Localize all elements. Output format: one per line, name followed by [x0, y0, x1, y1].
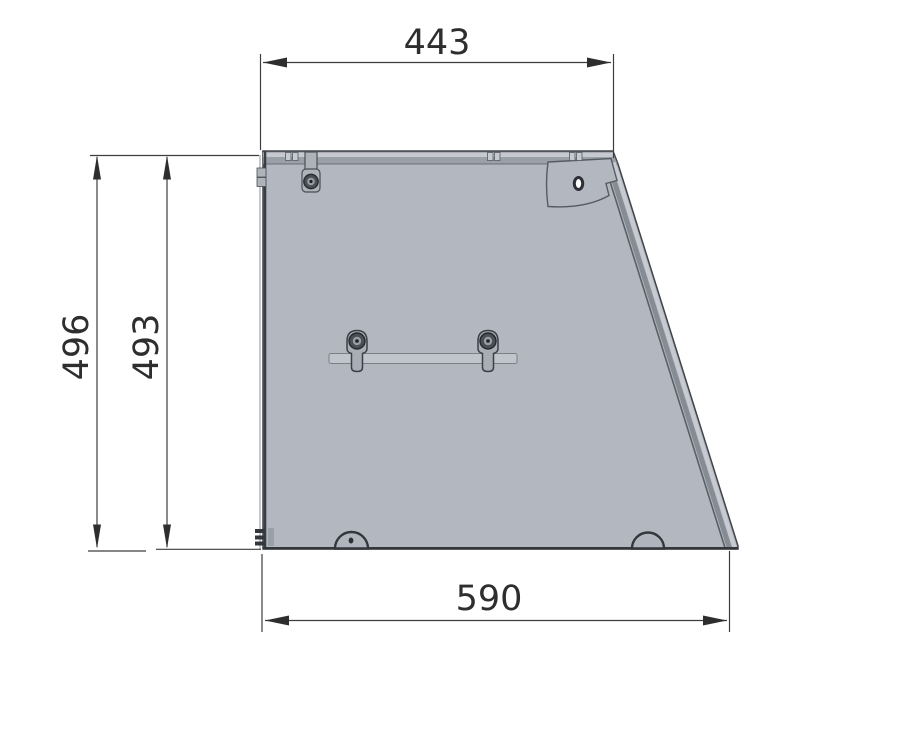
dimension-bottom-width: 590: [262, 551, 730, 632]
left-edge-tab: [257, 168, 266, 177]
arrowhead-right: [587, 58, 611, 68]
technical-drawing-svg: 443 496 493 590: [0, 0, 900, 746]
cad-drawing-canvas: 443 496 493 590: [0, 0, 900, 746]
dimension-label-panel-height: 493: [127, 314, 167, 381]
top-bracket: [302, 152, 320, 192]
arrowhead-bottom: [163, 525, 171, 549]
foot-hole: [349, 538, 354, 544]
arrowhead-left: [263, 58, 287, 68]
left-corner-screw: [255, 529, 265, 533]
left-edge-tab: [257, 178, 266, 187]
flap-hole: [574, 178, 582, 190]
dimension-label-top-width: 443: [404, 23, 471, 63]
arrowhead-bottom: [93, 525, 101, 549]
arrowhead-left: [265, 616, 289, 626]
dimension-panel-height: 493: [127, 156, 261, 550]
arrowhead-right: [703, 616, 727, 626]
arrowhead-top: [163, 156, 171, 180]
panel-body: [255, 151, 740, 551]
arrowhead-top: [93, 156, 101, 180]
left-corner-screw: [255, 536, 265, 540]
dimension-label-bottom-width: 590: [456, 579, 523, 619]
left-corner-screw: [255, 542, 265, 546]
dimension-top-width: 443: [261, 23, 614, 158]
dimension-label-overall-height: 496: [57, 314, 97, 381]
left-corner-tab: [268, 528, 274, 546]
